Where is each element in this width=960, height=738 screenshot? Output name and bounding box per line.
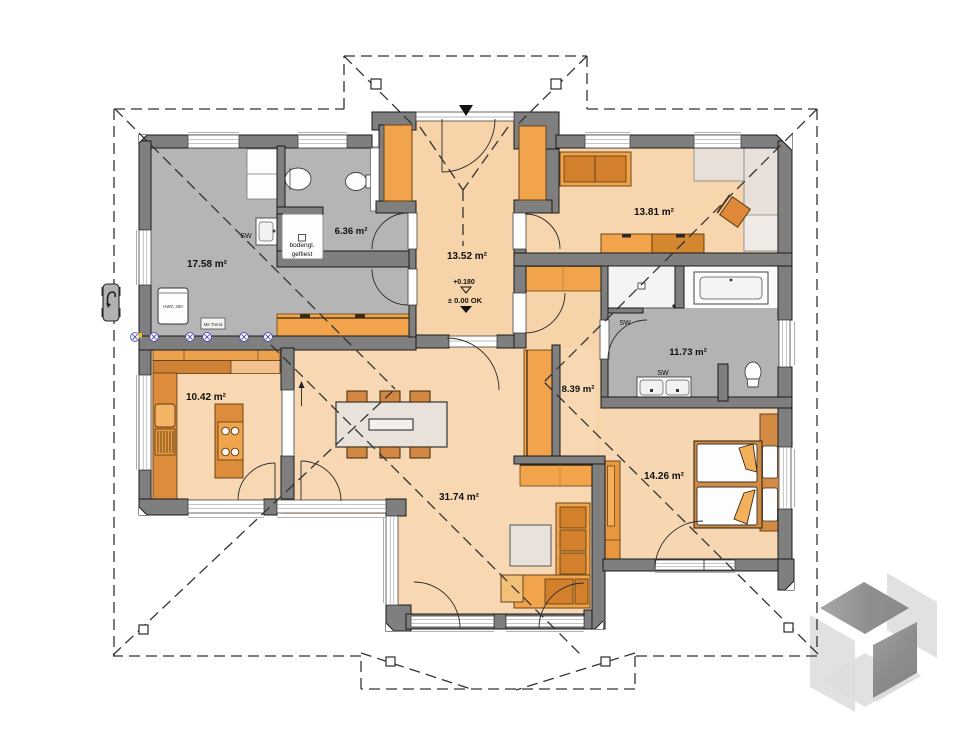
svg-text:14.26 m²: 14.26 m² — [644, 471, 685, 482]
svg-text:6.36 m²: 6.36 m² — [335, 226, 368, 237]
svg-text:SW: SW — [619, 320, 631, 327]
svg-text:13.81 m²: 13.81 m² — [634, 207, 675, 218]
svg-text:gefliest: gefliest — [292, 251, 313, 258]
svg-text:10.42 m²: 10.42 m² — [186, 392, 227, 403]
svg-text:HWC 300: HWC 300 — [163, 304, 183, 309]
svg-text:31.74 m²: 31.74 m² — [439, 492, 480, 503]
svg-text:SW: SW — [240, 233, 252, 240]
svg-text:+0.180: +0.180 — [453, 279, 475, 286]
svg-text:Mit Trend: Mit Trend — [204, 322, 223, 327]
svg-text:± 0.00 OK: ± 0.00 OK — [448, 296, 483, 305]
svg-text:SW: SW — [657, 370, 669, 377]
svg-text:13.52 m²: 13.52 m² — [447, 251, 488, 262]
svg-text:11.73 m²: 11.73 m² — [669, 347, 707, 358]
svg-text:bodengl.: bodengl. — [290, 242, 315, 249]
svg-text:8.39 m²: 8.39 m² — [562, 384, 595, 395]
svg-text:17.58 m²: 17.58 m² — [187, 259, 228, 270]
